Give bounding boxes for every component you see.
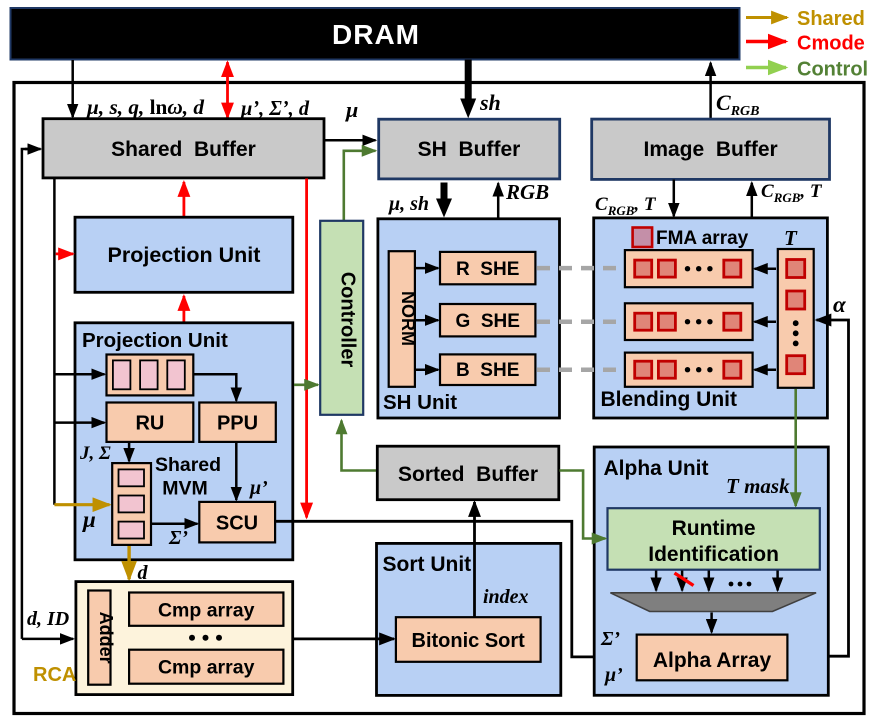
svg-text:SH Unit: SH Unit [383,391,457,414]
svg-text:B SHE: B SHE [456,360,519,381]
svg-text:Controller: Controller [337,272,359,368]
svg-text:Σ’: Σ’ [168,527,188,549]
svg-text:α: α [833,292,847,317]
svg-text:μ: μ [345,97,358,122]
svg-text:Sorted Buffer: Sorted Buffer [398,463,538,486]
svg-text:Blending Unit: Blending Unit [601,388,737,411]
svg-text:Shared: Shared [797,8,865,30]
svg-text:SH Buffer: SH Buffer [418,138,521,161]
svg-text:PPU: PPU [217,413,258,435]
svg-text:sh: sh [479,90,501,115]
svg-text:Image Buffer: Image Buffer [643,138,777,161]
svg-text:CRGB: CRGB [716,90,759,119]
svg-text:RU: RU [135,413,164,435]
svg-text:G SHE: G SHE [455,311,519,332]
svg-text:SCU: SCU [216,513,258,535]
svg-text:Identification: Identification [648,543,779,566]
svg-text:DRAM: DRAM [332,19,420,50]
svg-text:μ, s, q, lnω, d: μ, s, q, lnω, d [86,95,205,119]
svg-text:RGB: RGB [505,180,549,204]
svg-text:Shared: Shared [155,454,221,476]
svg-text:Cmp array: Cmp array [158,657,255,679]
svg-text:Adder: Adder [96,612,116,664]
svg-text:index: index [483,586,529,608]
svg-text:Projection Unit: Projection Unit [108,243,261,267]
svg-text:R SHE: R SHE [456,259,519,280]
svg-text:RCA: RCA [33,664,76,686]
svg-text:J, Σ: J, Σ [79,443,111,464]
svg-text:Projection Unit: Projection Unit [82,329,228,352]
svg-text:Cmode: Cmode [797,33,865,55]
svg-text:Shared Buffer: Shared Buffer [111,138,256,161]
svg-text:μ’: μ’ [249,477,268,499]
svg-text:Alpha Unit: Alpha Unit [604,457,709,480]
svg-text:d, ID: d, ID [27,608,69,630]
svg-text:μ: μ [82,507,96,532]
svg-text:Alpha Array: Alpha Array [653,649,772,672]
svg-text:CRGB, T: CRGB, T [595,194,657,218]
svg-text:Control: Control [797,59,868,81]
svg-text:Cmp array: Cmp array [158,600,255,622]
svg-text:Sort Unit: Sort Unit [383,553,472,576]
svg-text:μ’, Σ’, d: μ’, Σ’, d [240,96,309,120]
svg-text:Σ’: Σ’ [600,628,620,650]
svg-text:MVM: MVM [162,478,208,500]
svg-text:NORM: NORM [398,291,418,346]
svg-text:T: T [784,226,798,250]
svg-text:Bitonic Sort: Bitonic Sort [412,630,526,652]
svg-text:μ’: μ’ [604,664,623,686]
svg-text:FMA array: FMA array [656,228,749,249]
svg-text:Runtime: Runtime [672,517,756,540]
svg-text:μ, sh: μ, sh [388,193,429,215]
svg-text:CRGB, T: CRGB, T [761,181,823,205]
svg-text:T mask: T mask [726,474,790,498]
